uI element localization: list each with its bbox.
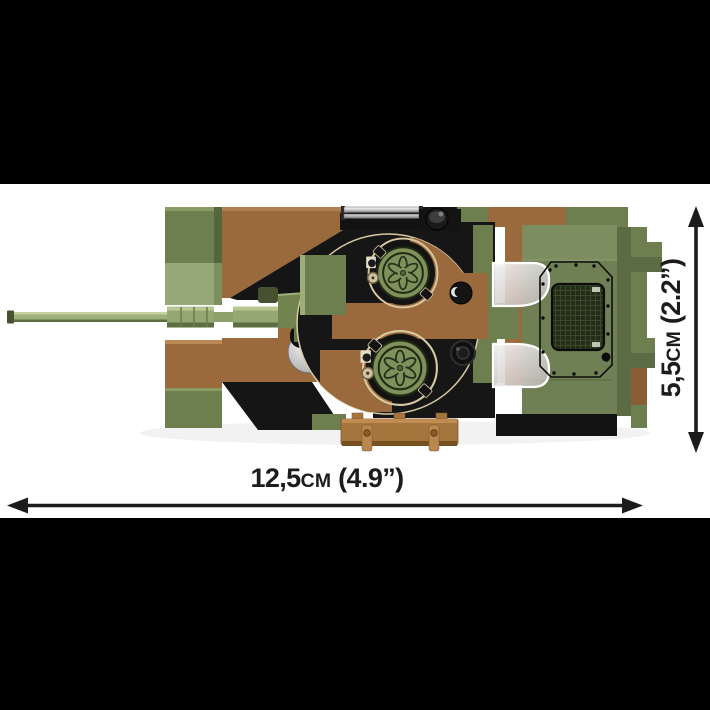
- height-unit: cm: [663, 331, 685, 362]
- width-dimension-label: 12,5cm (4.9”): [127, 462, 527, 494]
- width-dimension-arrow: [7, 498, 643, 514]
- tank-top-view-photo: [0, 0, 710, 710]
- antenna-knob: [451, 341, 475, 365]
- periscope-knob: [450, 282, 472, 304]
- width-imperial: (4.9”): [331, 463, 403, 493]
- width-unit: cm: [301, 470, 332, 492]
- hatch-knob: [419, 208, 461, 231]
- fuel-cap: [602, 353, 611, 362]
- height-imperial: (2.2”): [656, 259, 686, 331]
- tow-plank: [341, 413, 458, 451]
- handrail: [340, 206, 424, 230]
- turret-front-block: [300, 255, 346, 315]
- muzzle-brake: [167, 307, 214, 328]
- height-dimension-label: 5,5cm (2.2”): [655, 128, 687, 528]
- height-dimension-arrow: [688, 206, 704, 453]
- bore-evacuator: [233, 307, 278, 328]
- height-value: 5,5: [656, 362, 686, 398]
- muzzle-tip: [7, 311, 14, 324]
- width-value: 12,5: [250, 463, 300, 493]
- product-dimension-image: 12,5cm (4.9”) 5,5cm (2.2”): [0, 0, 710, 710]
- gun-barrel: [7, 307, 304, 328]
- engine-grille: [552, 284, 604, 350]
- turret-camo-band: [332, 303, 488, 339]
